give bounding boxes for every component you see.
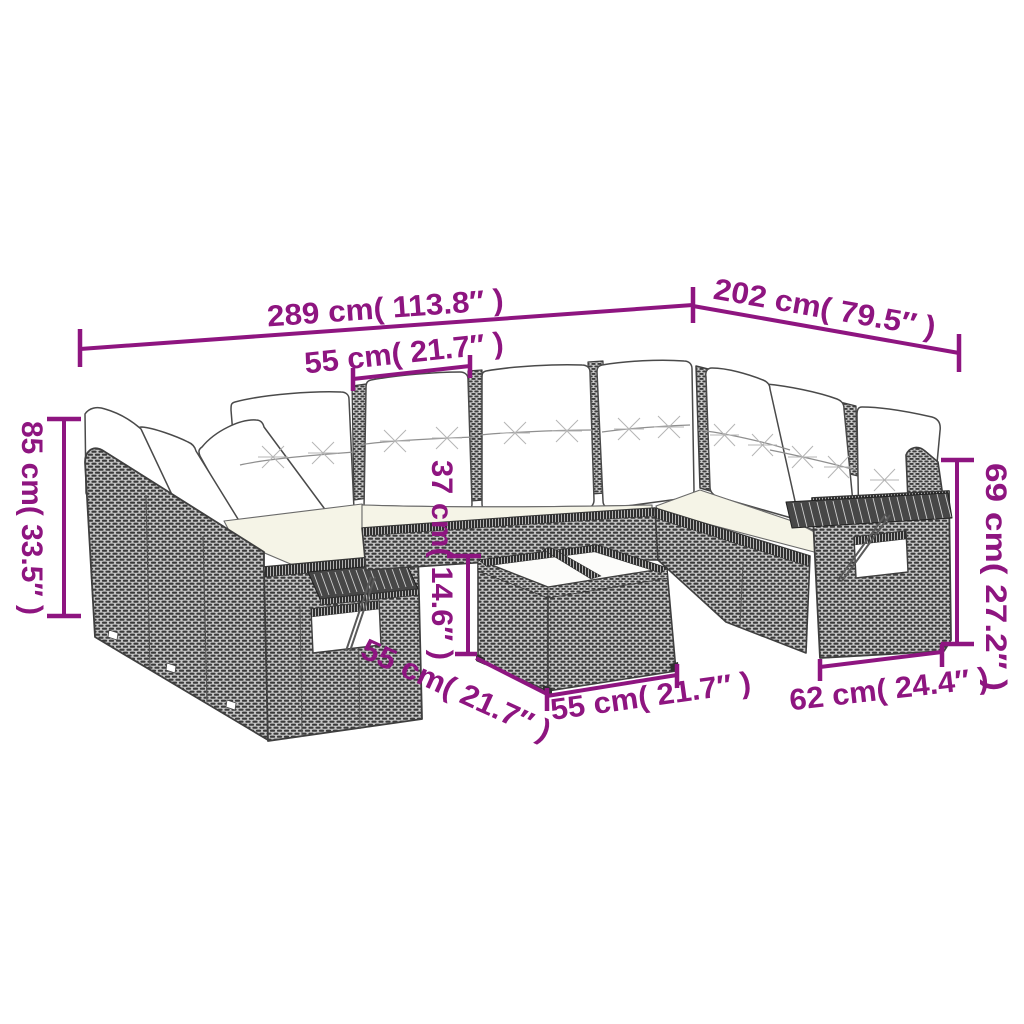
svg-text:202 cm( 79.5″ ): 202 cm( 79.5″ ) — [711, 273, 938, 345]
svg-text:85 cm( 33.5″ ): 85 cm( 33.5″ ) — [15, 421, 48, 615]
svg-text:37 cm( 14.6″ ): 37 cm( 14.6″ ) — [425, 460, 458, 660]
svg-text:69 cm( 27.2″ ): 69 cm( 27.2″ ) — [979, 463, 1012, 691]
